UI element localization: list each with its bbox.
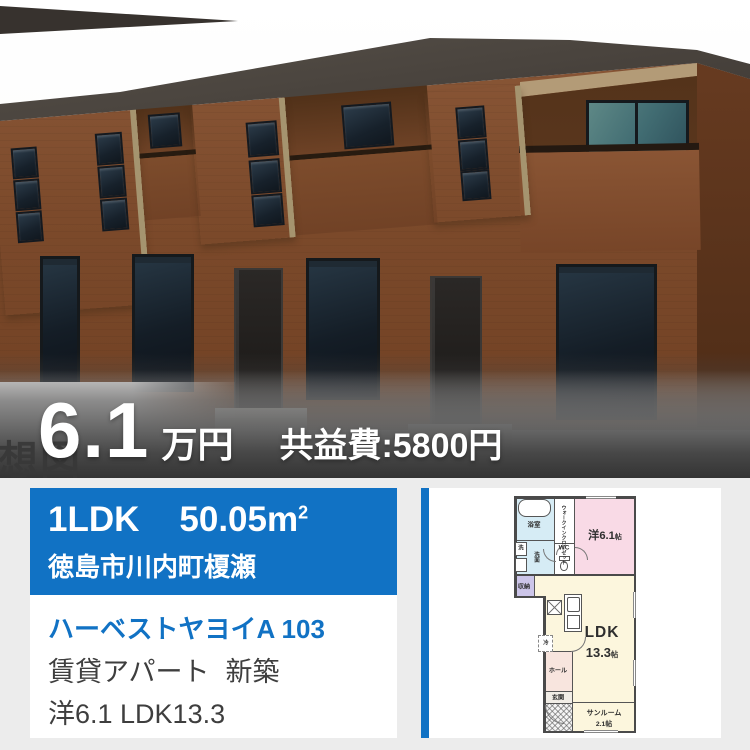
label-wic: ウォークインクローゼット — [561, 505, 568, 532]
listing-card-body: ハーベストヤヨイA 103 賃貸アパート新築 洋6.1 LDK13.3 — [30, 595, 397, 730]
label-vanity: 洗面 — [533, 551, 541, 562]
label-fridge: 冷 — [543, 639, 548, 646]
wall — [543, 596, 546, 733]
accent-divider — [421, 488, 429, 738]
price-row: 6.1 万円 共益費:5800円 — [38, 393, 502, 468]
window — [16, 210, 44, 243]
label-bath: 浴室 — [528, 519, 541, 529]
balcony-recess — [283, 83, 439, 254]
floorplan-thumbnail[interactable]: 浴室 洗 洗面 ウォークインクローゼット WC 洋6.1帖 収納 LDK 13.… — [429, 488, 721, 738]
label-ldk: LDK — [585, 624, 620, 642]
listing-content: 1LDK 50.05m2 徳島市川内町榎瀬 ハーベストヤヨイA 103 賃貸アパ… — [0, 478, 750, 750]
property-photo[interactable]: 想図 6.1 万円 共益費:5800円 — [0, 0, 750, 478]
window — [341, 102, 394, 150]
window-mark — [633, 592, 636, 618]
window — [249, 158, 283, 194]
property-type-line: 賃貸アパート新築 — [48, 657, 397, 688]
floorplan: 浴室 洗 洗面 ウォークインクローゼット WC 洋6.1帖 収納 LDK 13.… — [514, 496, 636, 733]
dining-table — [547, 600, 562, 615]
window — [251, 193, 284, 227]
window — [97, 165, 126, 199]
label-hall: ホール — [549, 666, 567, 675]
wall — [514, 574, 636, 577]
label-ldk-size: 13.3帖 — [586, 645, 618, 660]
facade-panel — [190, 98, 296, 245]
window-mark — [633, 660, 636, 686]
layout-label: 1LDK — [48, 501, 139, 540]
label-storage: 収納 — [518, 582, 530, 591]
property-rooms-line: 洋6.1 LDK13.3 — [48, 699, 397, 730]
address-label: 徳島市川内町榎瀬 — [48, 547, 397, 584]
window — [95, 132, 124, 166]
label-entrance: 玄関 — [552, 693, 564, 702]
label-sunroom: サンルーム — [587, 707, 622, 718]
window — [148, 112, 183, 148]
label-western-room: 洋6.1帖 — [588, 526, 622, 543]
window-mark — [584, 730, 618, 733]
facade-panel — [424, 85, 531, 222]
balcony-parapet — [519, 150, 701, 253]
label-sunroom-size: 2.1帖 — [596, 718, 612, 728]
window — [13, 178, 41, 211]
window — [246, 120, 280, 157]
price-unit: 万円 — [161, 416, 233, 468]
common-fee: 共益費:5800円 — [279, 418, 502, 467]
window — [100, 198, 129, 232]
property-title-link[interactable]: ハーベストヤヨイA 103 — [48, 609, 397, 646]
price-amount: 6.1 — [38, 393, 149, 467]
listing-card[interactable]: 1LDK 50.05m2 徳島市川内町榎瀬 ハーベストヤヨイA 103 賃貸アパ… — [30, 488, 397, 738]
label-washer: 洗 — [518, 544, 523, 551]
kitchen-stove — [567, 615, 580, 629]
window — [11, 146, 39, 179]
window — [455, 105, 486, 139]
wall — [514, 596, 545, 598]
listing-card-header: 1LDK 50.05m2 徳島市川内町榎瀬 — [30, 488, 397, 595]
kitchen-sink — [567, 597, 580, 612]
bathtub — [518, 499, 551, 517]
window — [458, 138, 489, 171]
vanity-unit — [515, 558, 527, 572]
window-mark — [586, 496, 616, 499]
label-wc: WC — [559, 544, 570, 551]
area-label: 50.05m2 — [179, 501, 308, 540]
window — [460, 169, 491, 201]
